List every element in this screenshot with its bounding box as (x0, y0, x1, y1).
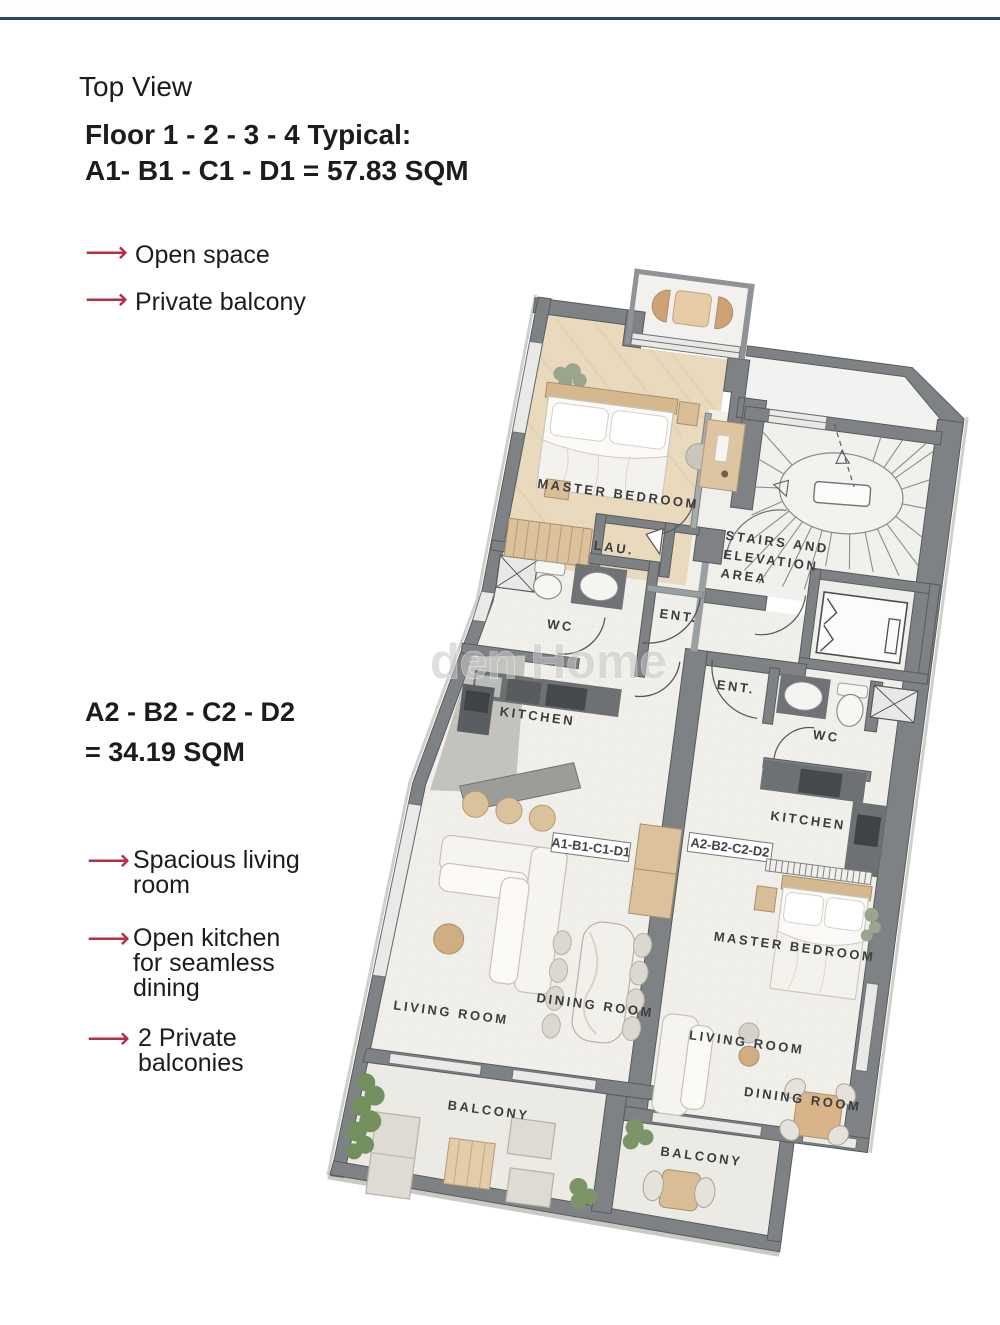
svg-text:den Home: den Home (430, 635, 667, 689)
